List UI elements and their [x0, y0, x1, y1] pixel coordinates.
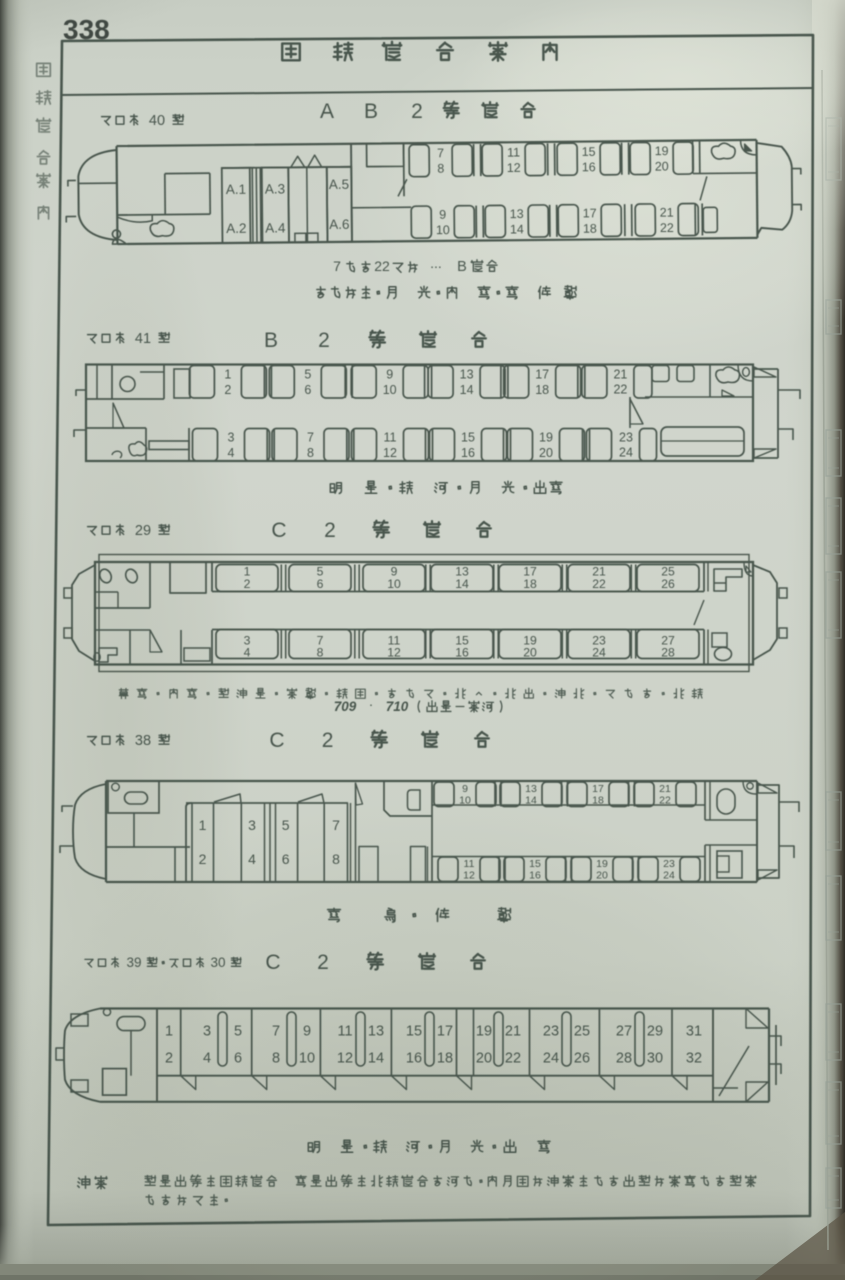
svg-text:23: 23 — [619, 431, 633, 445]
svg-text:12: 12 — [387, 646, 401, 660]
svg-text:6: 6 — [282, 851, 290, 867]
svg-text:B: B — [457, 259, 467, 275]
svg-text:17: 17 — [583, 206, 597, 220]
svg-text:27: 27 — [616, 1024, 632, 1040]
svg-text:7: 7 — [307, 431, 314, 445]
svg-text:C: C — [271, 519, 286, 542]
svg-text:5: 5 — [282, 817, 290, 833]
svg-text:24: 24 — [592, 646, 606, 660]
svg-text:8: 8 — [307, 446, 314, 460]
svg-text:19: 19 — [539, 431, 553, 445]
svg-text:2: 2 — [324, 519, 336, 542]
svg-text:19: 19 — [476, 1024, 492, 1040]
svg-text:21: 21 — [505, 1024, 521, 1040]
svg-text:10: 10 — [436, 223, 450, 237]
svg-text:20: 20 — [655, 159, 669, 173]
svg-text:13: 13 — [525, 783, 537, 795]
svg-text:29: 29 — [135, 523, 151, 539]
svg-text:32: 32 — [686, 1051, 702, 1067]
svg-text:22: 22 — [659, 795, 671, 807]
svg-text:19: 19 — [655, 144, 669, 158]
svg-text:12: 12 — [337, 1051, 353, 1067]
svg-text:6: 6 — [304, 383, 311, 397]
svg-text:11: 11 — [507, 145, 520, 159]
svg-text:...: ... — [430, 255, 442, 271]
svg-text:18: 18 — [535, 383, 549, 397]
svg-text:10: 10 — [299, 1051, 315, 1067]
svg-text:9: 9 — [462, 783, 468, 795]
svg-text:30: 30 — [647, 1051, 663, 1067]
svg-text:23: 23 — [543, 1024, 559, 1040]
svg-text:8: 8 — [317, 646, 324, 660]
svg-text:28: 28 — [616, 1051, 632, 1067]
svg-text:23: 23 — [663, 858, 675, 870]
svg-text:9: 9 — [386, 368, 393, 382]
svg-text:10: 10 — [383, 383, 397, 397]
svg-text:9: 9 — [439, 208, 446, 222]
svg-text:6: 6 — [317, 577, 324, 591]
svg-text:14: 14 — [510, 222, 524, 236]
svg-text:5: 5 — [234, 1024, 242, 1040]
svg-text:14: 14 — [460, 383, 474, 397]
svg-text:15: 15 — [461, 431, 475, 445]
svg-text:39: 39 — [126, 955, 141, 970]
svg-text:11: 11 — [384, 431, 397, 445]
svg-text:2: 2 — [165, 1051, 173, 1067]
svg-text:2: 2 — [318, 329, 330, 352]
svg-text:16: 16 — [582, 160, 596, 174]
svg-text:22: 22 — [374, 258, 390, 274]
svg-text:A.3: A.3 — [265, 181, 285, 196]
svg-text:7: 7 — [437, 146, 444, 160]
svg-text:19: 19 — [596, 858, 608, 870]
svg-text:12: 12 — [507, 161, 521, 175]
svg-text:21: 21 — [613, 368, 627, 382]
svg-text:17: 17 — [535, 368, 549, 382]
svg-text:18: 18 — [592, 795, 604, 807]
svg-text:3: 3 — [228, 431, 235, 445]
svg-text:7: 7 — [332, 817, 340, 833]
svg-text:2: 2 — [244, 577, 251, 591]
svg-text:24: 24 — [619, 446, 633, 460]
svg-text:18: 18 — [523, 577, 537, 591]
svg-text:16: 16 — [461, 446, 475, 460]
svg-text:8: 8 — [437, 162, 444, 176]
svg-text:16: 16 — [455, 646, 469, 660]
svg-text:20: 20 — [523, 646, 537, 660]
svg-text:20: 20 — [596, 870, 608, 882]
svg-text:18: 18 — [437, 1051, 453, 1067]
svg-text:14: 14 — [455, 577, 469, 591]
svg-text:22: 22 — [613, 383, 627, 397]
svg-text:5: 5 — [304, 368, 311, 382]
svg-text:A.5: A.5 — [329, 177, 349, 192]
svg-text:2: 2 — [411, 100, 423, 123]
svg-text:2: 2 — [317, 951, 329, 974]
svg-text:709: 709 — [334, 699, 357, 714]
svg-text:3: 3 — [203, 1024, 211, 1040]
svg-text:A.1: A.1 — [226, 182, 246, 197]
svg-text:18: 18 — [583, 222, 597, 236]
svg-text:16: 16 — [406, 1051, 422, 1067]
svg-text:3: 3 — [248, 817, 256, 833]
svg-text:14: 14 — [525, 795, 537, 807]
svg-text:20: 20 — [476, 1051, 492, 1067]
svg-text:15: 15 — [529, 858, 541, 870]
svg-text:28: 28 — [661, 646, 675, 660]
svg-text:20: 20 — [539, 446, 553, 460]
svg-text:24: 24 — [663, 870, 675, 882]
svg-text:4: 4 — [248, 851, 256, 867]
svg-text:38: 38 — [135, 733, 151, 749]
svg-text:2: 2 — [199, 851, 207, 867]
svg-text:21: 21 — [660, 206, 674, 220]
svg-text:25: 25 — [574, 1024, 590, 1040]
svg-text:13: 13 — [460, 368, 474, 382]
svg-text:6: 6 — [234, 1051, 242, 1067]
svg-text:A: A — [320, 100, 334, 123]
svg-text:40: 40 — [149, 113, 165, 129]
svg-text:12: 12 — [383, 446, 397, 460]
svg-text:7: 7 — [333, 258, 341, 274]
svg-text:2: 2 — [322, 729, 334, 752]
svg-text:17: 17 — [437, 1024, 453, 1040]
svg-text:22: 22 — [660, 221, 674, 235]
svg-text:24: 24 — [543, 1051, 559, 1067]
svg-text:9: 9 — [303, 1024, 311, 1040]
svg-text:13: 13 — [368, 1024, 384, 1040]
svg-text:710: 710 — [386, 699, 409, 714]
svg-text:8: 8 — [332, 851, 340, 867]
svg-text:7: 7 — [272, 1024, 280, 1040]
svg-text:A.2: A.2 — [226, 221, 246, 236]
svg-text:B: B — [264, 329, 278, 352]
svg-text:22: 22 — [592, 577, 606, 591]
svg-text:2: 2 — [224, 383, 231, 397]
svg-text:13: 13 — [510, 207, 524, 221]
svg-text:10: 10 — [459, 795, 471, 807]
svg-text:10: 10 — [387, 577, 401, 591]
svg-text:26: 26 — [574, 1051, 590, 1067]
svg-text:21: 21 — [659, 783, 671, 795]
svg-text:1: 1 — [224, 368, 231, 382]
svg-text:11: 11 — [337, 1024, 352, 1040]
svg-text:15: 15 — [406, 1024, 422, 1040]
svg-text:41: 41 — [135, 331, 151, 347]
svg-text:1: 1 — [165, 1024, 173, 1040]
svg-text:26: 26 — [661, 577, 675, 591]
svg-text:A.6: A.6 — [329, 217, 349, 232]
svg-text:4: 4 — [203, 1051, 211, 1067]
svg-text:29: 29 — [647, 1024, 663, 1040]
svg-text:15: 15 — [582, 145, 596, 159]
svg-text:30: 30 — [210, 955, 225, 970]
svg-text:12: 12 — [463, 870, 475, 882]
svg-text:14: 14 — [368, 1051, 384, 1067]
svg-text:16: 16 — [529, 870, 541, 882]
svg-text:31: 31 — [686, 1024, 702, 1040]
svg-text:11: 11 — [464, 858, 475, 870]
svg-text:4: 4 — [228, 446, 235, 460]
svg-text:1: 1 — [199, 817, 207, 833]
svg-text:22: 22 — [505, 1051, 521, 1067]
svg-text:8: 8 — [272, 1051, 280, 1067]
svg-text:17: 17 — [592, 783, 604, 795]
svg-text:B: B — [364, 100, 378, 123]
svg-text:C: C — [269, 729, 284, 752]
svg-text:A.4: A.4 — [265, 220, 286, 235]
svg-text:·: · — [369, 697, 374, 712]
svg-text:C: C — [265, 951, 280, 974]
svg-text:4: 4 — [244, 646, 251, 660]
